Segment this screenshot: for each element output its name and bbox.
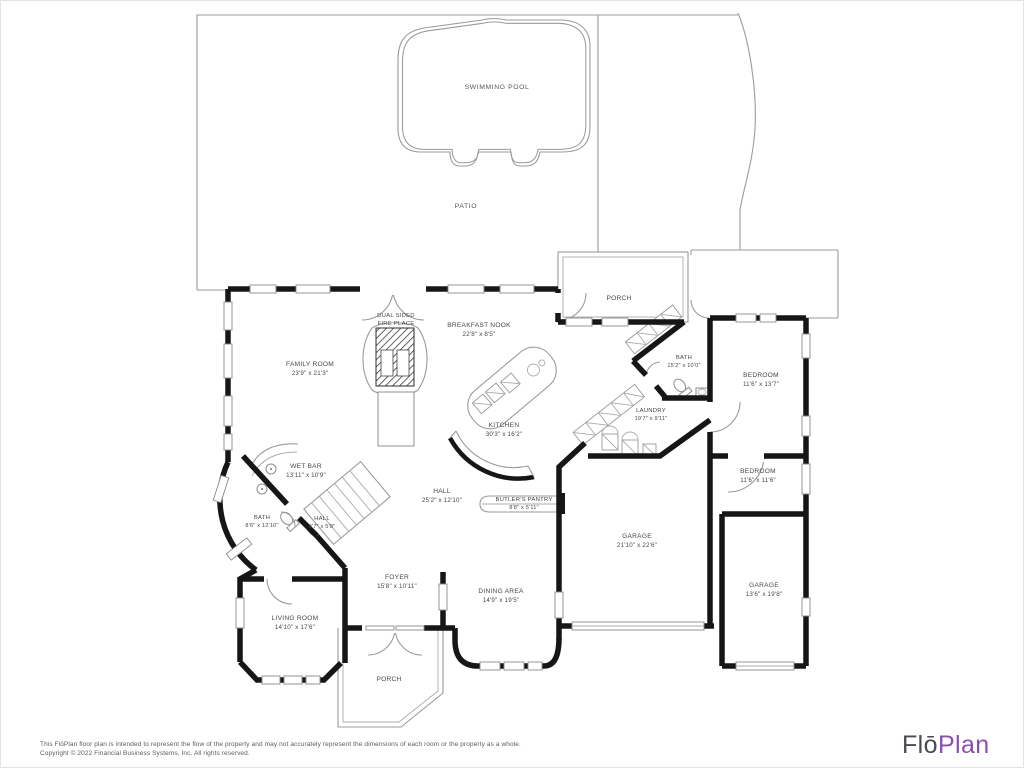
dims-wet-bar: 13'11" x 10'9"	[286, 472, 326, 479]
footer-disclaimer: This FlōPlan floor plan is intended to r…	[40, 740, 700, 758]
dims-garage-large: 21'10" x 22'6"	[617, 542, 657, 549]
disclaimer-line-2: Copyright © 2022 Financial Business Syst…	[40, 749, 700, 758]
dims-garage-small: 13'6" x 19'8"	[746, 591, 783, 598]
kitchen-counter-arc	[450, 431, 534, 479]
label-hall-small: HALL	[314, 516, 330, 522]
label-living-room: LIVING ROOM	[272, 615, 319, 622]
dims-hall-small: 9'7" x 5'8"	[309, 524, 336, 530]
dims-hall-main: 25'2" x 12'10"	[422, 497, 462, 504]
dims-laundry: 19'7" x 9'11"	[635, 416, 668, 422]
dims-foyer: 15'8" x 10'11"	[377, 583, 417, 590]
label-dining-area: DINING AREA	[478, 588, 524, 595]
label-porch-top: PORCH	[606, 295, 631, 302]
label-butlers-pantry: BUTLER'S PANTRY	[495, 497, 552, 503]
floplan-logo: FlōPlan	[902, 731, 990, 760]
label-patio: PATIO	[455, 203, 477, 210]
label-breakfast-nook: BREAKFAST NOOK	[447, 322, 511, 329]
label-porch-bottom: PORCH	[376, 676, 401, 683]
label-garage-small: GARAGE	[749, 582, 779, 589]
dims-family-room: 23'9" x 21'3"	[292, 370, 329, 377]
fireplace-chase	[378, 392, 414, 446]
floorplan-page: SWIMMING POOL PATIO PORCH DUAL SIDED FIR…	[0, 0, 1024, 768]
dims-butlers-pantry: 8'8" x 5'11"	[509, 505, 539, 511]
fireplace	[363, 323, 427, 446]
label-garage-large: GARAGE	[622, 533, 652, 540]
label-hall-main: HALL	[433, 488, 451, 495]
label-bath-right: BATH	[676, 355, 692, 361]
label-fireplace-line2: FIRE PLACE	[378, 321, 415, 327]
dims-breakfast-nook: 22'8" x 8'5"	[463, 331, 496, 338]
label-bedroom-top: BEDROOM	[743, 372, 779, 379]
label-family-room: FAMILY ROOM	[286, 361, 334, 368]
label-bedroom-mid: BEDROOM	[740, 468, 776, 475]
floplan-logo-flo: Flō	[902, 731, 938, 759]
label-fireplace-line1: DUAL SIDED	[377, 313, 415, 319]
dims-dining-area: 14'9" x 19'5"	[483, 597, 520, 604]
laundry-machines	[602, 426, 656, 456]
swimming-pool	[398, 19, 590, 167]
dims-bath-right: 15'2" x 10'0"	[667, 363, 700, 369]
bath-right-fixtures	[671, 376, 708, 398]
label-wet-bar: WET BAR	[290, 463, 322, 470]
dims-bath-small: 8'6" x 12'10"	[245, 523, 278, 529]
label-laundry: LAUNDRY	[636, 408, 666, 414]
label-swimming-pool: SWIMMING POOL	[465, 84, 530, 91]
dims-living-room: 14'10" x 17'6"	[275, 624, 315, 631]
floplan-logo-plan: Plan	[938, 731, 990, 759]
label-bath-small: BATH	[254, 515, 270, 521]
label-kitchen: KITCHEN	[489, 422, 520, 429]
dims-bedroom-mid: 11'6" x 11'6"	[740, 477, 776, 484]
floorplan-canvas: SWIMMING POOL PATIO PORCH DUAL SIDED FIR…	[0, 0, 1024, 768]
disclaimer-line-1: This FlōPlan floor plan is intended to r…	[40, 740, 700, 749]
dims-kitchen: 30'3" x 16'2"	[486, 431, 523, 438]
dims-bedroom-top: 11'6" x 13'7"	[743, 381, 779, 388]
label-foyer: FOYER	[385, 574, 409, 581]
